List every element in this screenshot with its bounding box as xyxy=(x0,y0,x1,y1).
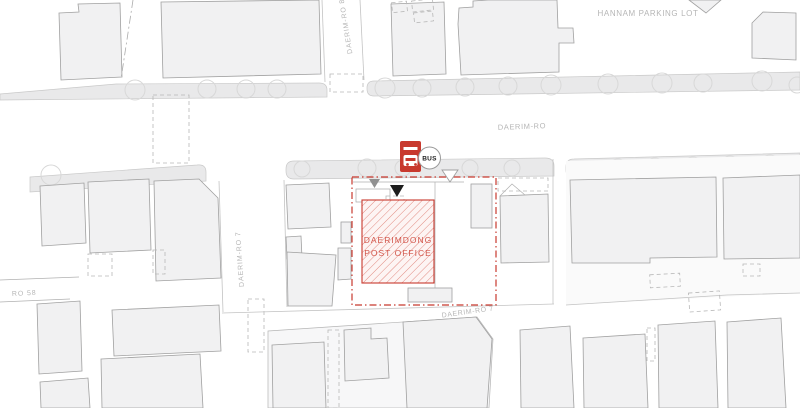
entrance-marker-black-triangle xyxy=(390,185,404,197)
building-footprint xyxy=(391,2,446,76)
yard-outline xyxy=(88,254,112,276)
rear-structure xyxy=(408,288,452,302)
street-label-daerim-ro-8: DAERIM-RO 8 xyxy=(339,0,355,54)
street-label-daerim-ro-7-vertical: DAERIM-RO 7 xyxy=(235,231,246,287)
bus-stop: BUS xyxy=(400,141,441,172)
building-footprint xyxy=(40,183,86,246)
bus-badge-label: BUS xyxy=(422,156,437,163)
daerim-ro-7-side-road: DAERIM-RO 7 xyxy=(235,231,264,352)
yard-outline xyxy=(498,178,548,191)
building-footprint xyxy=(403,317,492,408)
post-office-label-line2: POST OFFICE xyxy=(364,248,432,258)
hannam-parking-lot-label: HANNAM PARKING LOT xyxy=(598,9,699,18)
building-footprint xyxy=(101,354,203,408)
crosswalk-outline xyxy=(153,95,189,163)
building-footprint xyxy=(727,318,786,408)
sidewalk-strip xyxy=(367,72,800,96)
building-footprint xyxy=(287,252,336,306)
building-footprint xyxy=(272,342,326,408)
building-footprint xyxy=(112,305,221,356)
building-footprint xyxy=(40,378,90,408)
bus-stop-icon-bar xyxy=(404,147,418,150)
building-footprint xyxy=(161,0,321,78)
building-footprint xyxy=(520,326,574,408)
alley-outline xyxy=(647,328,655,361)
site-plan-svg: HANNAM PARKING LOT DAERIM-RO 8 xyxy=(0,0,800,408)
building-footprint xyxy=(458,0,574,75)
building-footprint xyxy=(37,301,82,374)
parcel-boundary-line xyxy=(121,0,133,79)
alley-edge-line xyxy=(0,277,79,280)
building-footprint xyxy=(59,3,122,80)
road-curb-line xyxy=(360,0,364,80)
building-footprint xyxy=(583,334,648,408)
site-plan-canvas: HANNAM PARKING LOT DAERIM-RO 8 xyxy=(0,0,800,408)
building-footprint xyxy=(570,177,717,263)
east-block xyxy=(566,155,800,312)
entrance-marker-gray-triangle xyxy=(369,179,380,188)
building-footprint xyxy=(341,222,351,243)
south-blocks: DAERIM-RO 7 xyxy=(268,305,786,408)
road-curb-line xyxy=(322,0,325,82)
building-footprint xyxy=(500,194,549,263)
post-office-label-line1: DAERIMDONG xyxy=(364,235,433,245)
north-block: HANNAM PARKING LOT DAERIM-RO 8 xyxy=(59,0,796,82)
bus-icon-wheel xyxy=(406,163,409,166)
crosswalk-outline xyxy=(330,74,363,92)
crosswalk-outline xyxy=(248,299,264,352)
building-footprint xyxy=(752,12,796,60)
bus-icon-windows xyxy=(406,158,416,161)
roof-line xyxy=(500,184,525,196)
street-label-daerim-ro: DAERIM-RO xyxy=(498,121,547,132)
annex-building xyxy=(471,184,492,228)
building-footprint xyxy=(338,248,351,280)
bus-icon-wheel xyxy=(414,163,417,166)
building-footprint xyxy=(658,321,718,408)
building-footprint xyxy=(286,183,331,229)
west-block: RO 58 xyxy=(0,179,223,408)
building-footprint xyxy=(88,179,151,253)
street-label-ro-58: RO 58 xyxy=(12,290,37,298)
building-footprint xyxy=(154,179,221,281)
alley-edge-line xyxy=(0,299,70,302)
building-footprint xyxy=(723,175,800,259)
